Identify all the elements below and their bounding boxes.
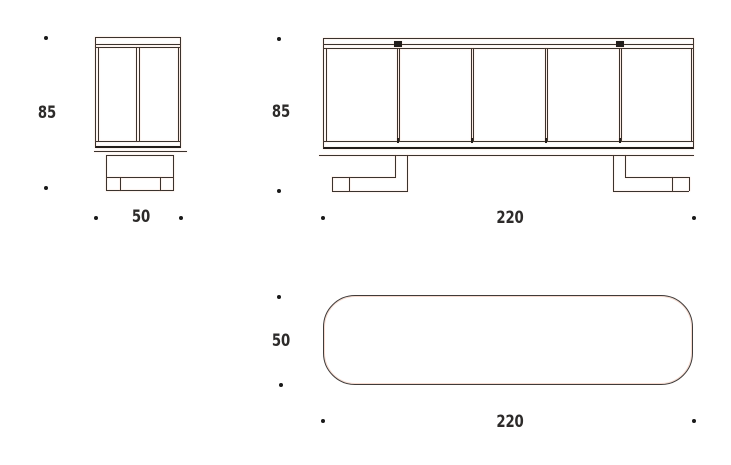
front-door-divider-3b [547, 48, 548, 142]
dimension-dot [179, 216, 183, 220]
front-top-cap-bottom-line [324, 48, 693, 49]
side-door-inner-edge-right [178, 47, 179, 141]
front-left-leg-foot-bottom [332, 191, 408, 192]
front-door-divider-2b [473, 48, 474, 142]
side-underside-strip-line [94, 151, 187, 152]
front-body-outline [323, 38, 694, 149]
front-height-label: 85 [272, 102, 290, 122]
front-door-inner-edge-right [691, 48, 692, 142]
dimension-dot [279, 383, 283, 387]
front-right-leg-foot-end [689, 177, 690, 191]
front-right-leg-foot-divider [672, 177, 673, 191]
front-right-leg-foot-top [625, 177, 689, 178]
dimension-dot [277, 37, 281, 41]
front-divider-foot-cap [471, 138, 474, 143]
front-door-inner-edge-left [326, 48, 327, 142]
front-left-leg-foot-top [332, 177, 396, 178]
front-left-leg-stem-inner [395, 155, 396, 177]
dimension-dot [321, 419, 325, 423]
side-center-line-b [139, 47, 140, 141]
front-door-divider-4a [619, 48, 620, 142]
front-right-leg-foot-bottom [613, 191, 689, 192]
technical-drawing-canvas: 85 50 [0, 0, 731, 465]
side-top-cap-line [96, 44, 180, 45]
side-door-inner-edge-left [98, 47, 99, 141]
front-divider-foot-cap [397, 138, 400, 143]
side-width-label: 50 [131, 207, 149, 227]
front-door-divider-2a [471, 48, 472, 142]
dimension-dot [692, 419, 696, 423]
plan-top-outline [323, 295, 693, 385]
front-door-divider-3a [545, 48, 546, 142]
front-hinge-block-right [616, 41, 624, 48]
front-right-leg-stem-inner [625, 155, 626, 177]
side-center-line-a [136, 47, 137, 141]
front-door-divider-1a [397, 48, 398, 142]
dimension-dot [44, 36, 48, 40]
dimension-dot [692, 216, 696, 220]
side-plinth-inner-line [107, 177, 173, 178]
front-door-bottom-line [324, 141, 693, 142]
side-door-bottom-line [96, 141, 180, 142]
dimension-dot [94, 216, 98, 220]
front-top-cap-line [324, 44, 693, 45]
side-plinth-divider-right [160, 177, 161, 191]
plan-width-label: 220 [496, 412, 523, 432]
front-divider-foot-cap [619, 138, 622, 143]
front-door-divider-4b [621, 48, 622, 142]
front-door-divider-1b [399, 48, 400, 142]
front-underside-strip-line [319, 155, 694, 156]
dimension-dot [44, 186, 48, 190]
side-height-label: 85 [37, 103, 55, 123]
front-left-leg-foot-divider [349, 177, 350, 191]
dimension-dot [321, 216, 325, 220]
side-plinth-outline [106, 155, 174, 192]
side-plinth-divider-left [120, 177, 121, 191]
front-left-leg-stem-outer [407, 155, 408, 191]
front-width-label: 220 [496, 208, 523, 228]
front-left-leg-foot-end [332, 177, 333, 191]
front-hinge-block-left [394, 41, 402, 48]
dimension-dot [277, 189, 281, 193]
front-right-leg-stem-outer [613, 155, 614, 191]
front-divider-foot-cap [545, 138, 548, 143]
plan-depth-label: 50 [272, 331, 290, 351]
dimension-dot [277, 295, 281, 299]
